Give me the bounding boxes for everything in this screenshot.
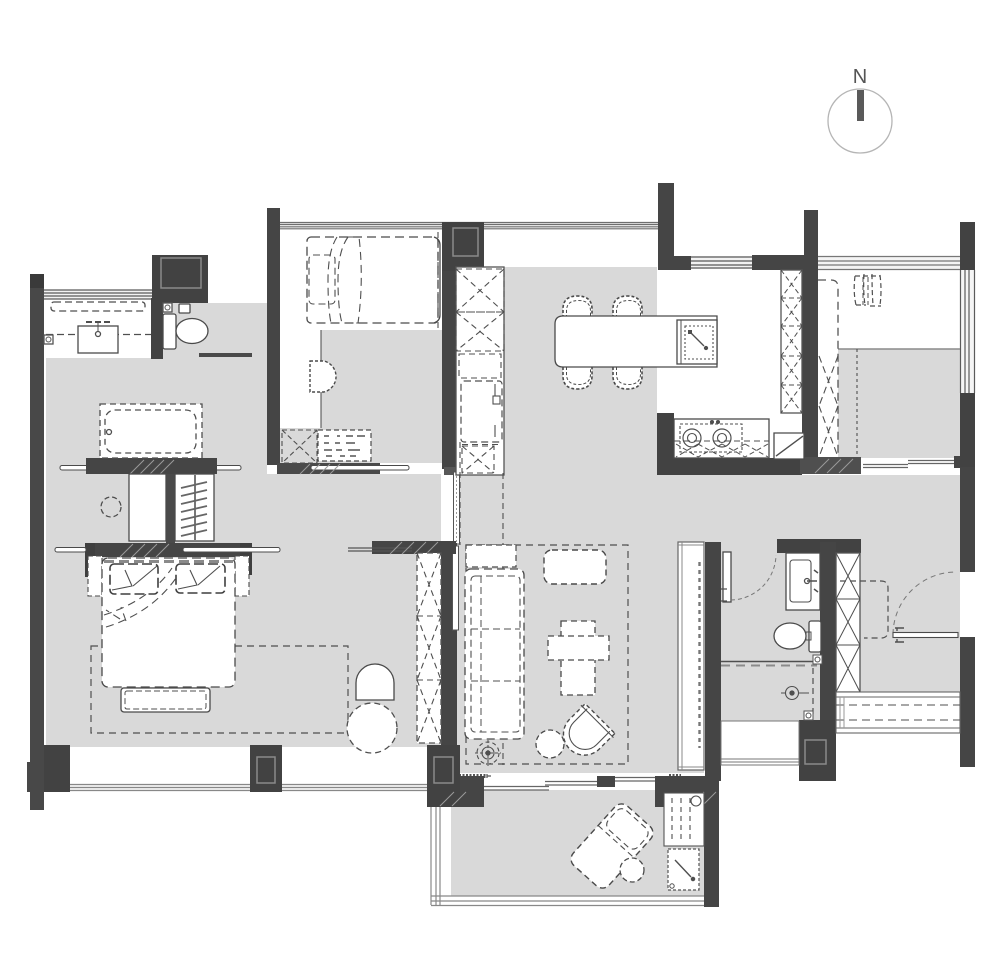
svg-text:N: N xyxy=(853,66,867,88)
